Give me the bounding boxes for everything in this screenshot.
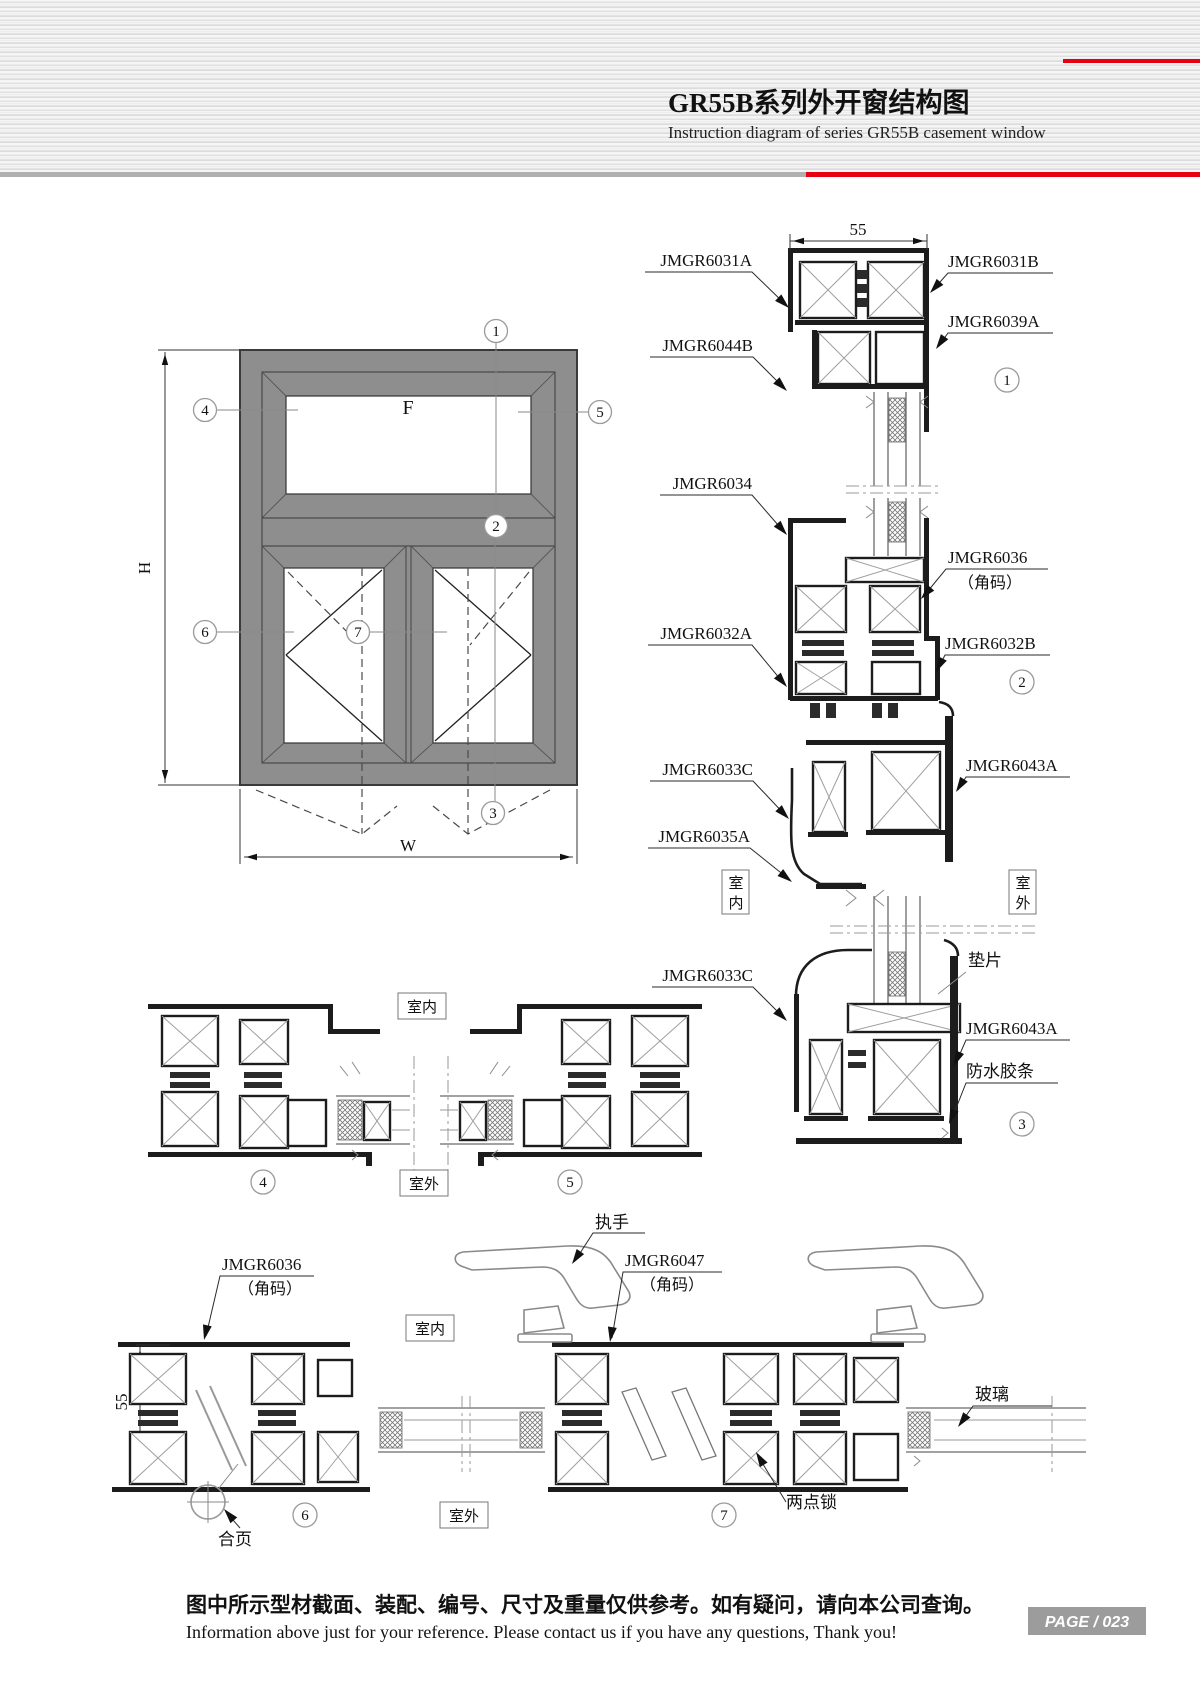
dim-height-label: H: [135, 562, 154, 574]
dim-width-label: W: [400, 836, 417, 855]
indoor-label-67: 室内: [415, 1321, 445, 1338]
part-label-jmgr6031b: JMGR6031B: [948, 252, 1039, 271]
page-title: GR55B系列外开窗结构图: [668, 87, 970, 118]
part-label-hinge: 合页: [218, 1530, 252, 1549]
page-header: GR55B系列外开窗结构图 Instruction diagram of ser…: [0, 0, 1200, 177]
page-subtitle: Instruction diagram of series GR55B case…: [668, 123, 1046, 142]
part-label-jmgr6033c-2: JMGR6033C: [662, 966, 753, 985]
outdoor-label-67: 室外: [449, 1508, 479, 1525]
fixed-pane-label: F: [402, 397, 413, 419]
window-elevation: H W F 1 2 3 4 5 6 7: [135, 320, 612, 865]
part-label-shim: 垫片: [968, 951, 1002, 970]
part-label-glass: 玻璃: [975, 1385, 1009, 1404]
header-rule-gray: [0, 172, 806, 177]
page-number: PAGE / 023: [1045, 1614, 1129, 1631]
detail1-number: 1: [1003, 373, 1011, 389]
part-label-waterproof-strip: 防水胶条: [966, 1062, 1034, 1081]
callout-1: 1: [492, 324, 500, 340]
page-footer: 图中所示型材截面、装配、编号、尺寸及重量仅供参考。如有疑问，请向本公司查询。 I…: [186, 1593, 1146, 1642]
callout-4: 4: [201, 403, 209, 419]
part-label-jmgr6031a: JMGR6031A: [660, 251, 752, 270]
header-rule-red: [806, 172, 1200, 177]
part-label-jmgr6043a-2: JMGR6043A: [966, 1019, 1058, 1038]
callout-2: 2: [492, 519, 500, 535]
indoor-label-char1: 室: [728, 875, 743, 892]
indoor-label-char2: 内: [728, 895, 743, 912]
detail2-number: 2: [1018, 675, 1026, 691]
outdoor-label-char1: 室: [1015, 875, 1030, 892]
dim-55-left: 55: [112, 1394, 131, 1411]
part-label-jmgr6036: JMGR6036: [948, 548, 1027, 567]
part-label-jmgr6036-sub: （角码）: [958, 574, 1022, 592]
footer-note-en: Information above just for your referenc…: [186, 1622, 897, 1642]
part-label-two-point-lock: 两点锁: [786, 1493, 837, 1512]
catalog-page: GR55B系列外开窗结构图 Instruction diagram of ser…: [0, 0, 1200, 1697]
detail-section-3-lower: JMGR6033C 垫片 JMGR6043A 防水胶条 3: [652, 940, 1070, 1144]
part-label-jmgr6032a: JMGR6032A: [660, 624, 752, 643]
callout-6: 6: [201, 625, 209, 641]
indoor-label-45: 室内: [407, 999, 437, 1016]
section7-number: 7: [720, 1508, 728, 1524]
sections-6-7: 55: [112, 1213, 1086, 1549]
part-label-jmgr6039a: JMGR6039A: [948, 312, 1040, 331]
section-4-profile: [148, 1004, 410, 1166]
part-label-jmgr6036-2: JMGR6036: [222, 1255, 301, 1274]
detail1-dim-55: 55: [850, 220, 867, 239]
handle-drawing: [455, 1246, 630, 1342]
outdoor-label-char2: 外: [1015, 895, 1030, 912]
part-label-jmgr6032b: JMGR6032B: [945, 634, 1036, 653]
part-label-jmgr6043a: JMGR6043A: [966, 756, 1058, 775]
section6-number: 6: [301, 1508, 309, 1524]
structure-diagram: GR55B系列外开窗结构图 Instruction diagram of ser…: [0, 0, 1200, 1697]
part-label-jmgr6036-2-sub: （角码）: [238, 1280, 302, 1298]
outdoor-label-45: 室外: [409, 1176, 439, 1193]
part-label-jmgr6047-sub: （角码）: [640, 1276, 704, 1294]
header-stripes: [0, 0, 1200, 172]
part-label-jmgr6033c: JMGR6033C: [662, 760, 753, 779]
detail-section-3-upper: JMGR6033C JMGR6043A JMGR6035A 室 内 室 外: [648, 702, 1070, 914]
callout-3: 3: [489, 806, 497, 822]
detail3-number: 3: [1018, 1117, 1026, 1133]
detail-section-2: JMGR6034 JMGR6036 （角码） JMGR6032A JMGR603…: [648, 474, 1050, 701]
callout-5: 5: [596, 405, 604, 421]
header-red-accent: [1063, 59, 1200, 63]
footer-note-cn: 图中所示型材截面、装配、编号、尺寸及重量仅供参考。如有疑问，请向本公司查询。: [186, 1593, 984, 1617]
part-label-jmgr6047: JMGR6047: [625, 1251, 705, 1270]
sections-4-5: 室内 室外 4 5: [148, 993, 702, 1196]
part-label-jmgr6035a: JMGR6035A: [658, 827, 750, 846]
detail-section-1: 55 JMGR6031A JMGR6044B JMGR6031B JMGR603…: [645, 220, 1053, 493]
part-label-jmgr6034: JMGR6034: [673, 474, 753, 493]
part-label-jmgr6044b: JMGR6044B: [662, 336, 753, 355]
section5-number: 5: [566, 1175, 574, 1191]
part-label-handle: 执手: [595, 1213, 629, 1232]
callout-7: 7: [354, 625, 362, 641]
section4-number: 4: [259, 1175, 267, 1191]
